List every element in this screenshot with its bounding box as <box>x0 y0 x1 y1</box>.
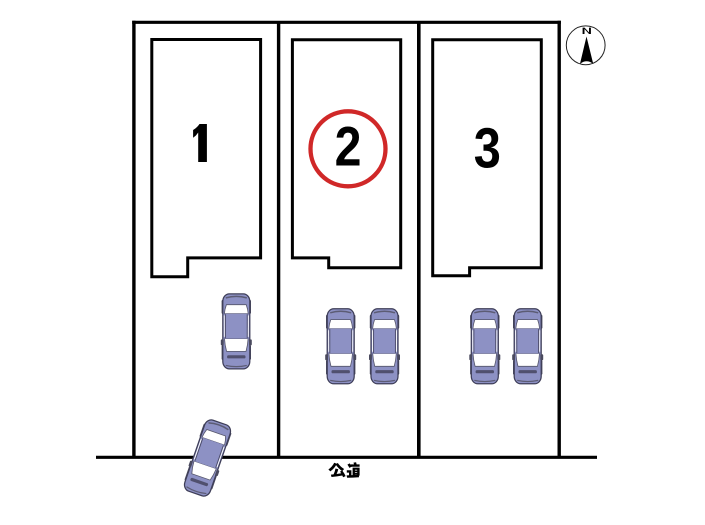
svg-text:2: 2 <box>335 116 362 178</box>
svg-text:3: 3 <box>474 118 501 181</box>
